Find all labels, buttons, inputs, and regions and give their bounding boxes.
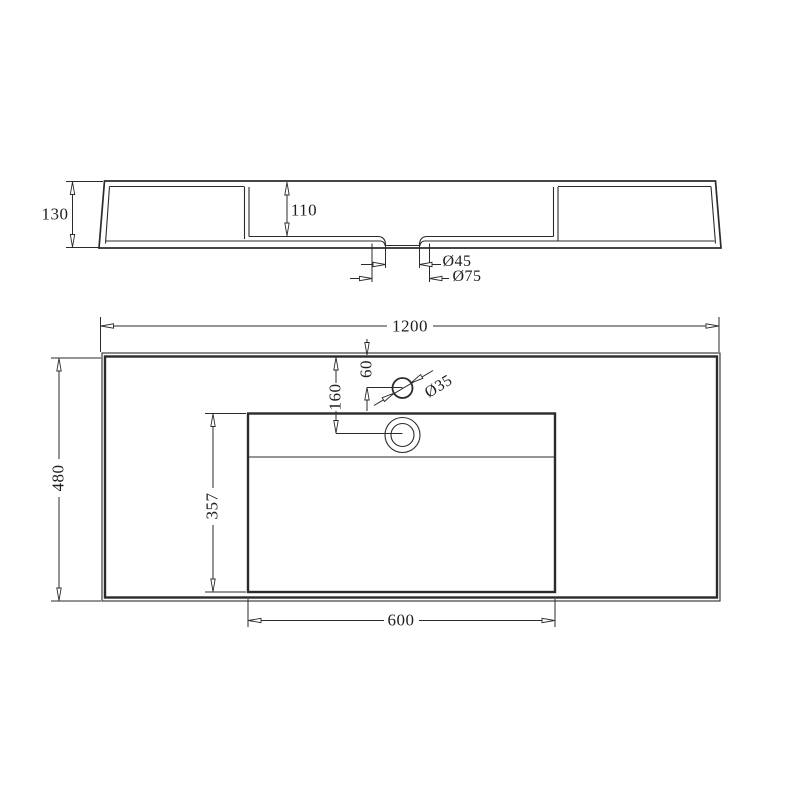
side-outer-profile xyxy=(99,181,721,248)
dim-label-drain-outer-dia: Ø75 xyxy=(452,269,481,285)
dim-label-bowl-inner-depth: 357 xyxy=(204,493,221,520)
drawing-linework xyxy=(0,0,800,800)
dim-label-bowl-depth: 110 xyxy=(291,202,317,219)
dim-label-overall-height: 130 xyxy=(42,206,69,223)
plan-outer-thin-rect xyxy=(102,353,720,601)
side-view-drawing xyxy=(66,181,721,282)
dim-label-drain-offset: 160 xyxy=(327,384,344,411)
dim-label-tap-offset: 60 xyxy=(358,360,375,378)
bowl-rect xyxy=(248,414,555,593)
drain-circle-inner xyxy=(391,424,414,447)
plan-view-drawing xyxy=(51,317,720,627)
side-dimension-lines xyxy=(66,182,449,283)
dim-label-bowl-inner-width: 600 xyxy=(388,612,415,629)
side-inner-lines xyxy=(106,187,716,246)
dim-label-overall-width: 1200 xyxy=(392,318,428,335)
drain-circle-outer xyxy=(385,418,420,453)
plan-dimension-lines xyxy=(51,317,719,627)
dim-label-overall-depth: 480 xyxy=(50,465,67,492)
technical-drawing-page: 130 110 Ø45 Ø75 1200 480 60 160 Ø35 357 … xyxy=(0,0,800,800)
